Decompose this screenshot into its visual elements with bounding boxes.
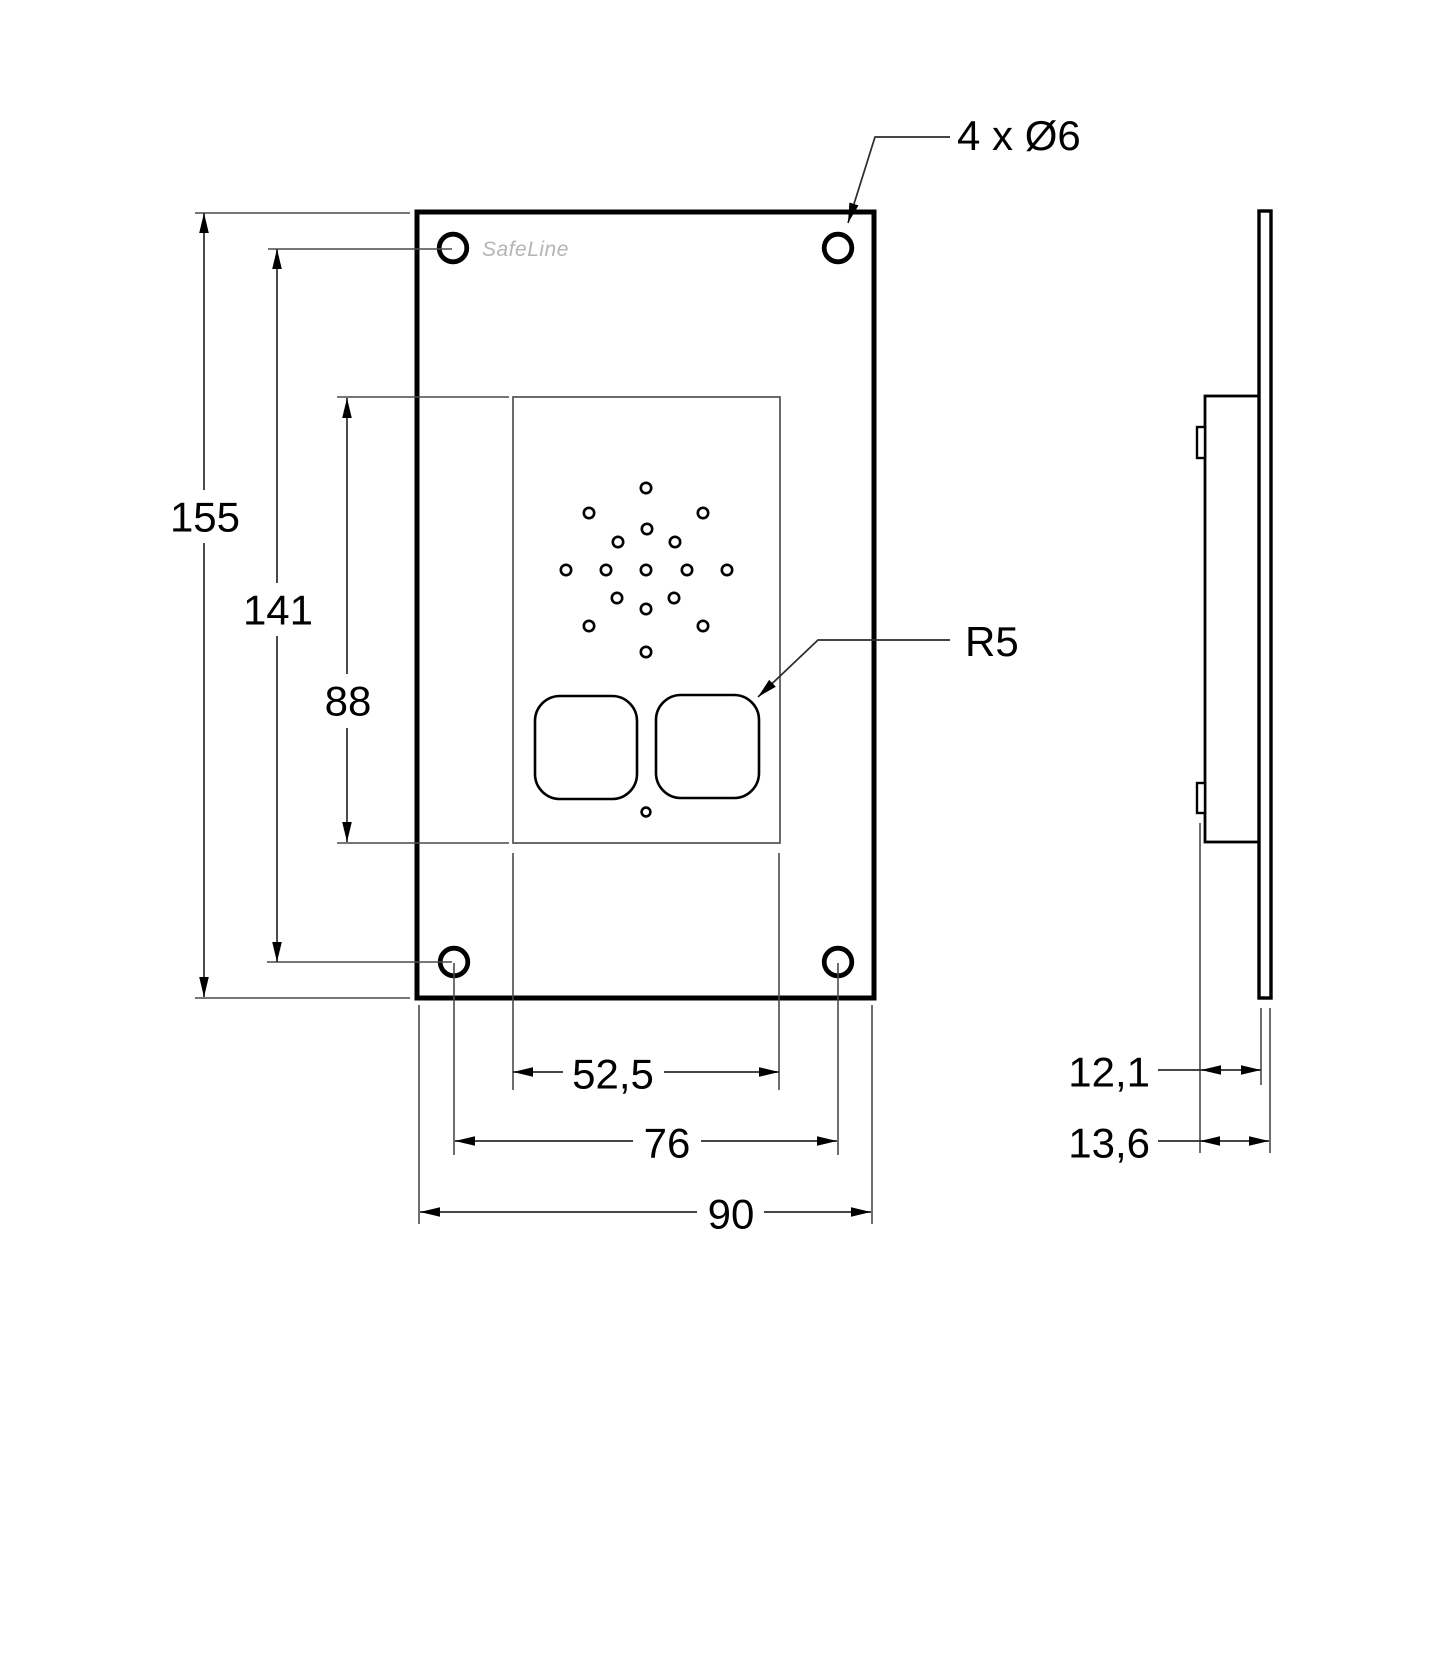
speaker-hole [584,508,594,518]
callout-label-holes: 4 x Ø6 [957,112,1081,159]
speaker-hole [722,565,732,575]
back-box-profile [1205,396,1259,842]
speaker-hole [669,593,679,603]
speaker-hole [670,537,680,547]
faceplate-profile [1259,211,1271,998]
technical-drawing: SafeLine [0,0,1439,1680]
front-view: SafeLine [417,212,874,998]
mounting-hole-top-right [824,234,852,262]
callout-label-radius: R5 [965,618,1019,665]
speaker-hole [642,524,652,534]
speaker-hole [613,537,623,547]
speaker-hole [601,565,611,575]
speaker-hole [641,647,651,657]
speaker-hole [612,593,622,603]
speaker-hole [641,483,651,493]
brand-logo: SafeLine [482,238,569,261]
dimension-label: 88 [325,678,372,725]
dimension-label: 141 [243,587,313,634]
dimension-depth-box: 12,1 [1068,823,1261,1153]
speaker-hole [698,508,708,518]
button-right [656,695,759,798]
mounting-hole-top-left [439,234,467,262]
dimension-label: 12,1 [1068,1049,1150,1096]
speaker-hole [561,565,571,575]
dimension-label: 90 [708,1191,755,1238]
dimension-label: 13,6 [1068,1120,1150,1167]
mounting-clip-bottom [1197,783,1205,813]
speaker-hole [698,621,708,631]
dimension-label: 52,5 [572,1051,654,1098]
speaker-hole [641,604,651,614]
callout-mounting-holes: 4 x Ø6 [848,112,1081,223]
speaker-hole [682,565,692,575]
microphone-hole [642,808,651,817]
side-view [1197,211,1271,998]
speaker-hole [641,565,651,575]
dimension-label: 76 [644,1120,691,1167]
dimension-label: 155 [170,494,240,541]
button-left [535,696,637,799]
speaker-hole [584,621,594,631]
mounting-clip-top [1197,427,1205,458]
